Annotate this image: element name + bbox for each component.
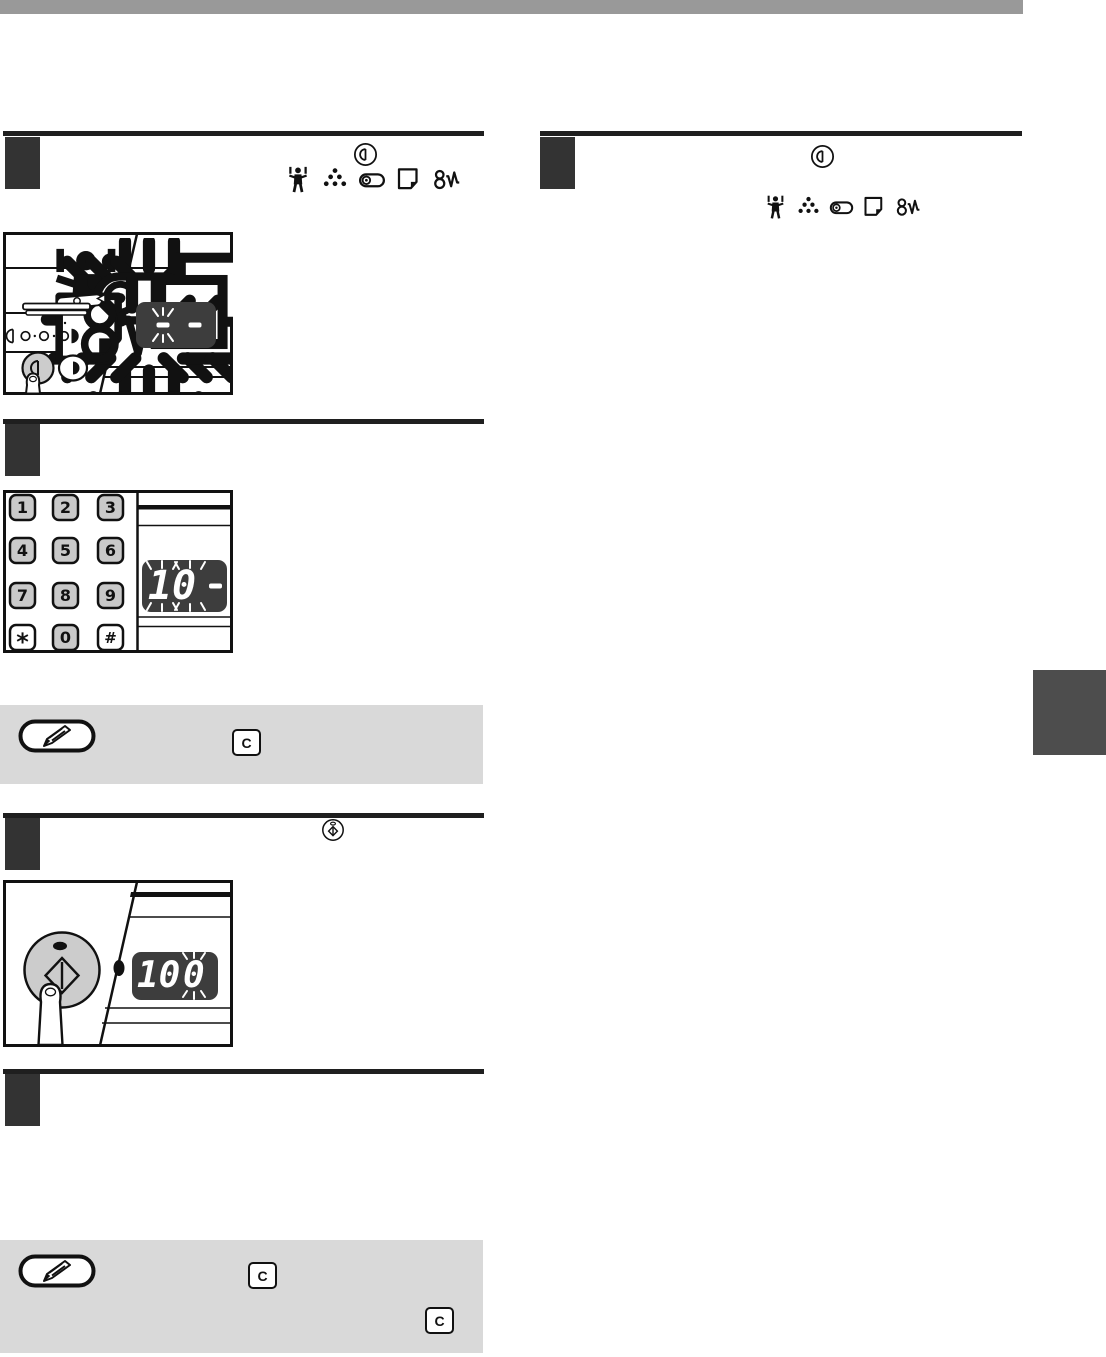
key-4: 4 bbox=[17, 541, 28, 560]
indicator-icon-row bbox=[762, 194, 921, 221]
step-number-box bbox=[5, 137, 40, 189]
pencil-note-icon bbox=[18, 719, 96, 753]
start-led bbox=[53, 942, 67, 950]
ratio-blinking-digit: 0 bbox=[183, 955, 205, 996]
key-8: 8 bbox=[60, 586, 71, 605]
key-6: 6 bbox=[105, 541, 116, 560]
blinking-dash-segment bbox=[157, 323, 170, 328]
key-5: 5 bbox=[60, 541, 71, 560]
steady-dash-segment bbox=[209, 584, 222, 589]
ratio-steady-digits: 10 bbox=[137, 955, 180, 996]
pencil-note-icon bbox=[18, 1254, 96, 1288]
developer-required-icon bbox=[828, 194, 855, 221]
developer-required-icon bbox=[357, 165, 387, 195]
step-number-box bbox=[5, 424, 40, 476]
manual-page: 1 2 3 4 5 6 7 8 9 * 0 # 10 bbox=[0, 0, 1106, 1357]
panel-latch bbox=[117, 312, 127, 327]
key-hash: # bbox=[104, 629, 117, 647]
quantity-display: 10 bbox=[142, 560, 227, 612]
keypad-diagram: 1 2 3 4 5 6 7 8 9 * 0 # 10 bbox=[3, 490, 233, 653]
clear-key: C bbox=[425, 1307, 454, 1334]
misfeed-icon bbox=[431, 165, 461, 195]
toner-cartridge-required-icon bbox=[795, 194, 822, 221]
chapter-side-tab bbox=[1033, 670, 1106, 755]
panel-latch bbox=[114, 960, 125, 976]
step-rule bbox=[3, 813, 484, 818]
start-button-diagram: 10 0 bbox=[3, 880, 233, 1047]
note-box: C bbox=[0, 705, 483, 784]
ratio-display: 10 0 bbox=[132, 951, 218, 1000]
exposure-key-icon bbox=[353, 142, 378, 167]
indicator-icon-row bbox=[283, 165, 461, 195]
exposure-panel-diagram bbox=[3, 232, 233, 395]
maintenance-required-icon bbox=[283, 165, 313, 195]
clear-key: C bbox=[232, 729, 261, 756]
paper-required-icon bbox=[394, 165, 424, 195]
page-header-bar bbox=[0, 0, 1023, 14]
key-9: 9 bbox=[105, 586, 116, 605]
step-number-box bbox=[5, 1074, 40, 1126]
step-rule bbox=[3, 131, 484, 136]
quantity-value: 10 bbox=[148, 563, 196, 609]
exposure-key-icon bbox=[810, 144, 835, 169]
key-star: * bbox=[16, 628, 29, 653]
start-key-icon bbox=[321, 818, 345, 842]
pressing-finger bbox=[39, 984, 63, 1045]
note-box: C C bbox=[0, 1240, 483, 1353]
step-rule bbox=[3, 1069, 484, 1074]
misfeed-icon bbox=[894, 194, 921, 221]
dark-key-button bbox=[59, 356, 87, 381]
clear-key: C bbox=[248, 1262, 277, 1289]
key-2: 2 bbox=[60, 498, 71, 517]
step-number-box bbox=[540, 137, 575, 189]
exposure-display bbox=[136, 302, 216, 348]
key-3: 3 bbox=[105, 498, 116, 517]
step-number-box bbox=[5, 818, 40, 870]
pressing-finger bbox=[26, 374, 40, 394]
start-button bbox=[25, 933, 100, 1008]
toner-cartridge-required-icon bbox=[320, 165, 350, 195]
step-rule bbox=[540, 131, 1022, 136]
key-7: 7 bbox=[17, 586, 28, 605]
key-1: 1 bbox=[17, 498, 28, 517]
maintenance-required-icon bbox=[762, 194, 789, 221]
steady-dash-segment bbox=[189, 323, 202, 328]
key-0: 0 bbox=[60, 628, 71, 647]
step-rule bbox=[3, 419, 484, 424]
paper-required-icon bbox=[861, 194, 888, 221]
